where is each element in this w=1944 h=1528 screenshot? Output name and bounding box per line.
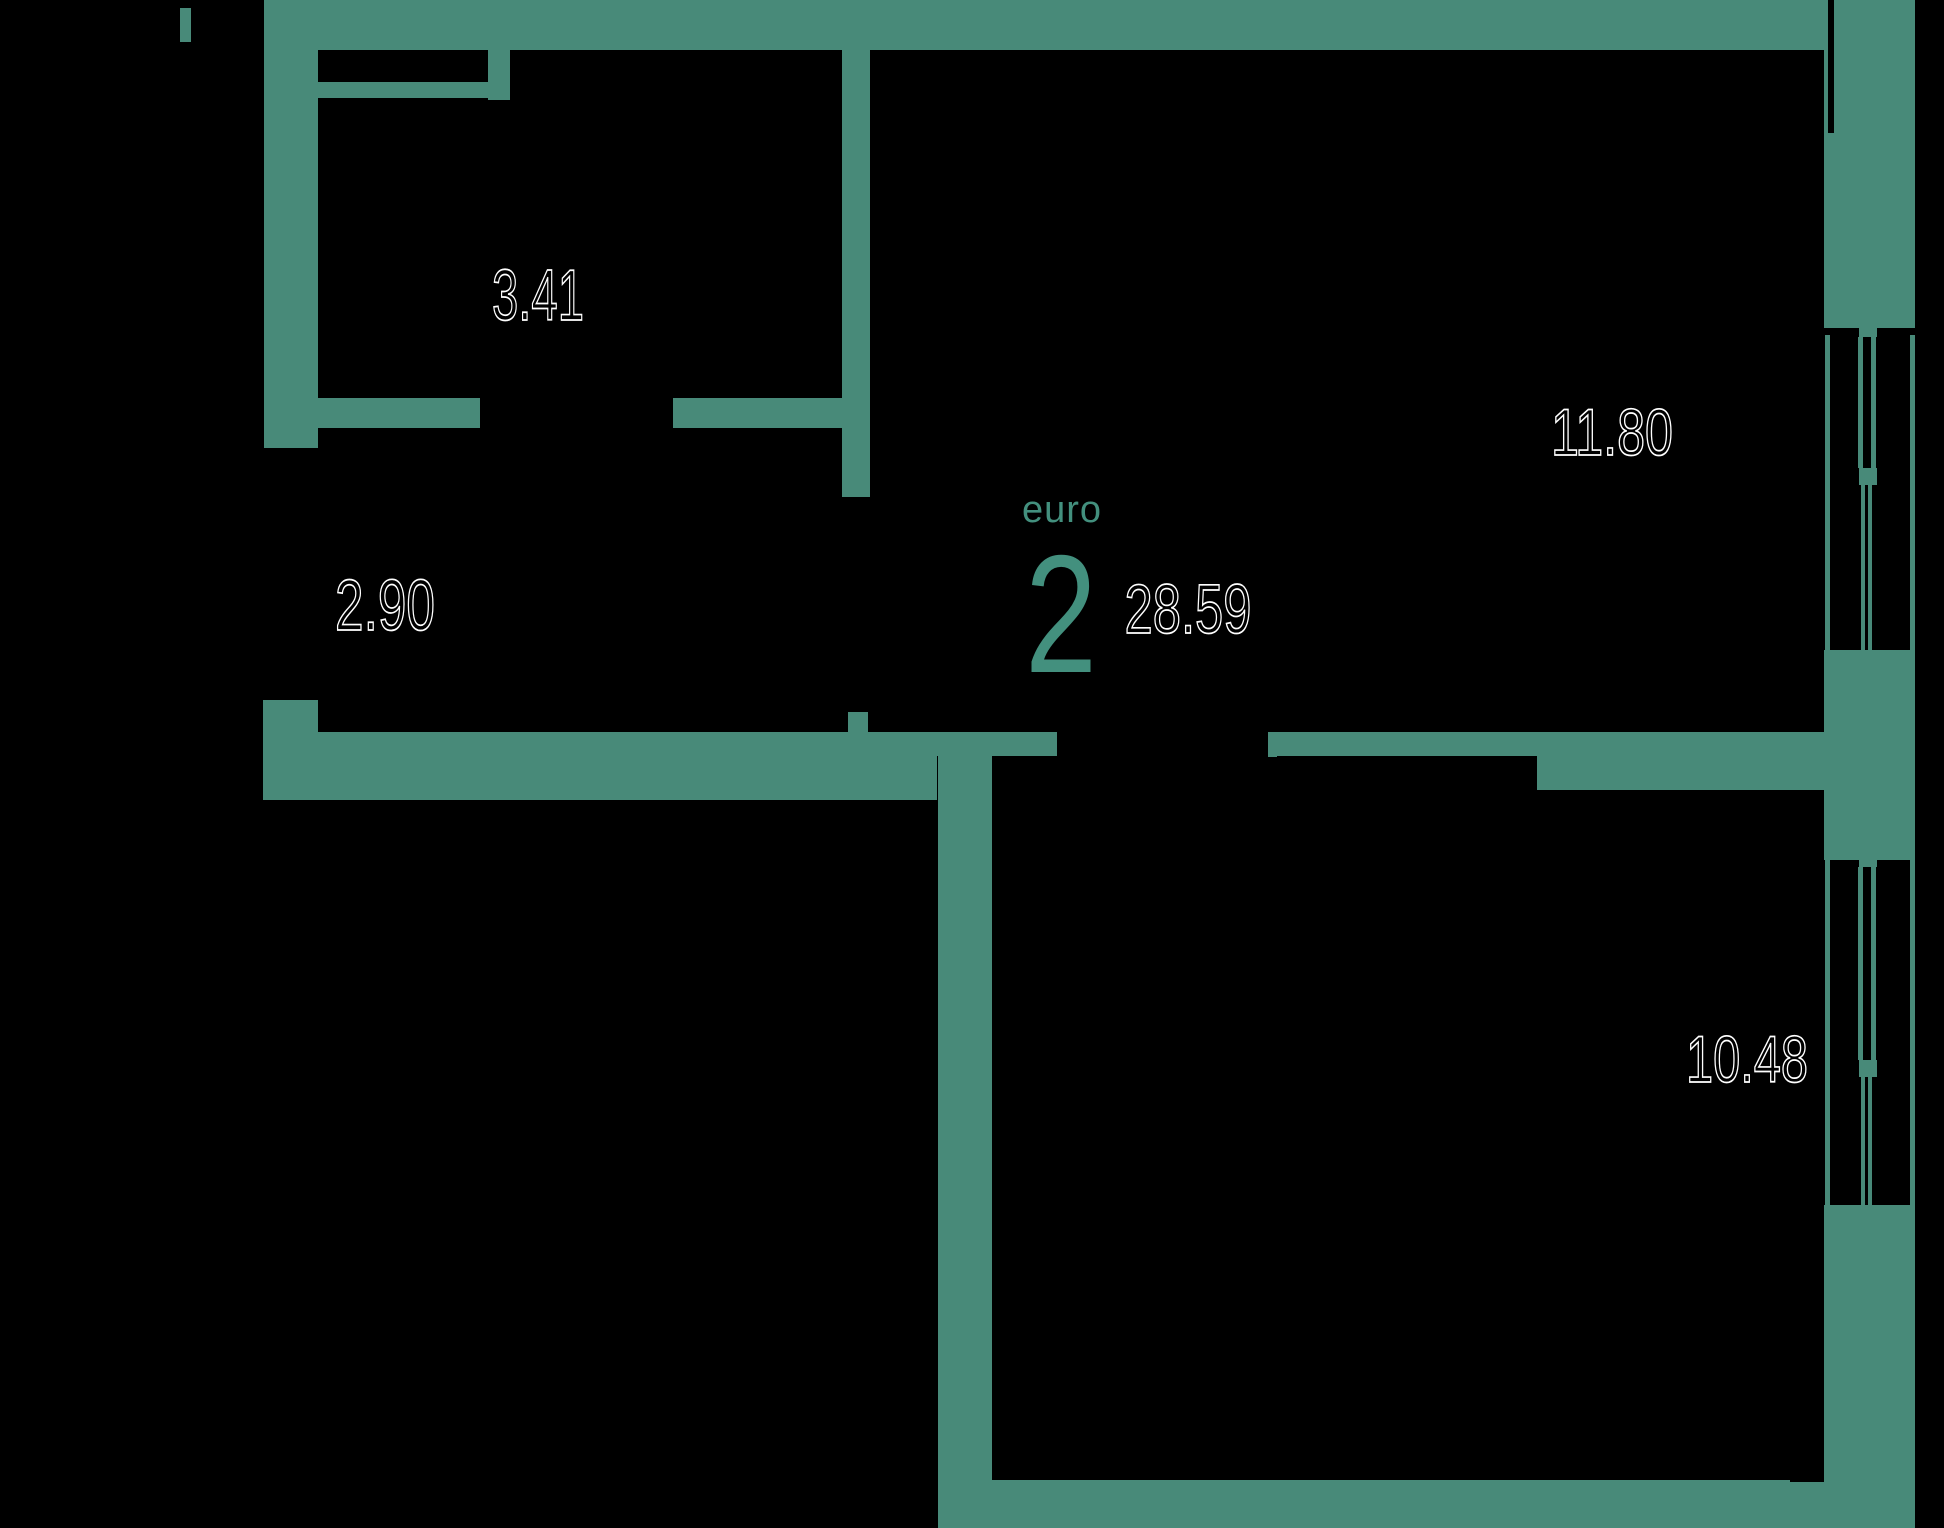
label-layer: 3.41 2.90 11.80 10.48 28.59 euro 2 bbox=[0, 0, 1944, 1528]
floor-plan: 3.41 2.90 11.80 10.48 28.59 euro 2 bbox=[0, 0, 1944, 1528]
room-area-label-balcony: 3.41 bbox=[492, 256, 584, 336]
unit-total-area-label: 28.59 bbox=[1125, 570, 1252, 648]
unit-rooms-count-label: 2 bbox=[1025, 520, 1097, 708]
room-area-label-bedroom: 10.48 bbox=[1686, 1022, 1808, 1096]
room-area-label-hallway: 2.90 bbox=[335, 566, 435, 646]
room-area-label-living-room: 11.80 bbox=[1551, 395, 1673, 469]
